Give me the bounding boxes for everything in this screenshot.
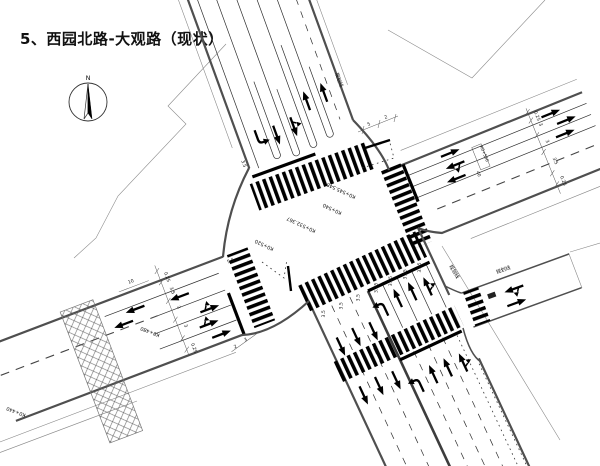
east-dim-3: 3.5	[551, 157, 559, 166]
north-straight-arrow-out-2	[317, 82, 330, 103]
south-east-edge	[418, 228, 530, 466]
south-down-arrow-4	[356, 385, 371, 406]
side-road-right-arrow	[506, 296, 527, 309]
side-road-crosswalk	[463, 287, 490, 326]
north-planning-line-label: 规划线	[333, 72, 345, 89]
south-in-dim-4: 3.25	[417, 262, 423, 272]
west-stop-line	[228, 293, 244, 334]
ne-island-dim-1: 2	[384, 114, 389, 121]
west-crosswalk-dim-1: 2	[233, 344, 238, 351]
station-west-far: K0+480	[140, 325, 161, 338]
west-dim-2: 3	[175, 305, 182, 310]
west-dim-1: 3.5	[168, 286, 176, 295]
ne-island-dim-0: 5	[367, 121, 372, 128]
east-dim-2: 3	[544, 139, 551, 144]
west-crosswalk-dim-2: 3	[243, 337, 248, 344]
intersection-plan-svg: 5、西园北路-大观路（现状） N 规划线 3.5	[0, 0, 600, 466]
side-road-end-boundary	[569, 243, 600, 288]
south-down-arrow-1	[334, 336, 349, 357]
west-island-markings	[262, 259, 291, 291]
east-station-box-label: K0+560	[479, 145, 490, 163]
north-lane-line	[189, 0, 258, 168]
drawing-canvas: 5、西园北路-大观路（现状） N 规划线 3.5	[0, 0, 600, 466]
station-3: K0+532.367	[286, 215, 317, 234]
side-road-bottom-corner	[463, 328, 481, 362]
south-down-arrow-2	[349, 327, 364, 348]
east-dimension-chain	[523, 107, 563, 195]
side-road: 规划线	[457, 244, 581, 327]
east-straight-left-arrow-in	[445, 158, 468, 177]
compass-needle-west-half	[84, 84, 88, 119]
side-road-left-arrow	[503, 282, 526, 300]
ne-island-bar	[365, 140, 390, 148]
station-southwest: K0+440	[6, 405, 27, 418]
south-in-dim-3: 3.25	[403, 269, 409, 279]
north-compass: N	[69, 74, 107, 121]
north-left-turn-arrow	[255, 127, 271, 147]
side-road-small-label-box	[487, 292, 496, 299]
south-east-dotted-lines	[457, 332, 528, 466]
south-arm: 3.5 3.5 3.5 3.25 3.25 3.25 3.25	[297, 228, 530, 466]
west-island-dotted-triangle	[262, 259, 287, 278]
west-crosswalk-dim-line	[229, 334, 260, 352]
west-dim-4: 0.25	[189, 342, 198, 354]
west-island-bar	[288, 266, 291, 291]
south-in-dim-1: 3.25	[374, 283, 380, 293]
nw-corner-curve	[223, 168, 249, 257]
se-planning-line-label: 规划线	[447, 263, 461, 279]
nw-parcel-boundary	[74, 44, 226, 258]
west-out-arrow-2	[125, 303, 146, 316]
west-median-dim: 10	[127, 278, 135, 286]
west-center-solid	[158, 290, 225, 316]
east-arm: K0+560 40 0.25 3 3 3.5 0.25	[377, 79, 600, 260]
east-median-width-dim: 40	[474, 170, 482, 178]
compass-needle-east-half	[88, 84, 92, 119]
compass-north-label: N	[86, 74, 91, 82]
north-road-edges	[172, 0, 356, 168]
east-dim-0: 0.25	[532, 110, 541, 122]
north-crosswalk	[250, 142, 376, 211]
station-1: K0+545.548	[326, 181, 357, 200]
west-dim-3: 3	[182, 324, 189, 329]
south-out-dim-1: 3.5	[321, 310, 327, 317]
west-arm: 0.25 3.5 3 3 0.25 10 5.5 2 3	[0, 232, 295, 466]
south-down-arrow-5	[372, 376, 387, 397]
south-up-right-arrow-1	[420, 274, 439, 297]
east-verge-lines	[401, 79, 600, 250]
south-out-dim-2: 3.5	[338, 302, 344, 309]
west-dimension-chain	[152, 264, 192, 356]
ne-parcel-boundary	[388, 0, 545, 78]
north-straight-arrow-in-1	[270, 125, 283, 146]
station-west: K0+520	[254, 238, 275, 252]
east-far-arrow-2	[556, 113, 577, 127]
page-title: 5、西园北路-大观路（现状）	[20, 30, 224, 48]
west-in-arrow-1	[197, 297, 220, 315]
side-road-planning-label: 规划线	[495, 264, 512, 276]
south-out-dim-3: 3.5	[356, 294, 362, 301]
east-far-arrow-3	[555, 127, 576, 141]
station-2: K0+540	[322, 202, 343, 216]
south-down-arrow-6	[389, 370, 404, 391]
north-verge-lines	[164, 0, 355, 148]
south-down-arrow-3	[366, 321, 381, 342]
south-in-dim-2: 3.25	[388, 276, 394, 286]
north-straight-left-arrow	[287, 114, 305, 137]
